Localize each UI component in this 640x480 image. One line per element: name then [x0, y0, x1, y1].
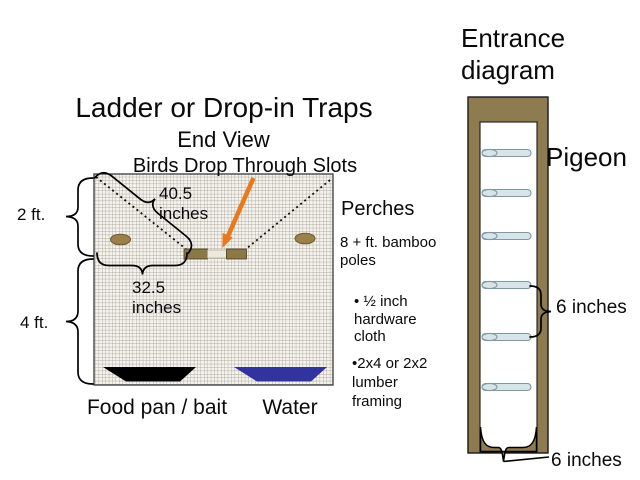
- drop-slots-caption: Birds Drop Through Slots: [128, 155, 362, 179]
- opening-width-label: 6 inches: [551, 450, 622, 472]
- perch-pole-left: [111, 234, 131, 245]
- slot-opening: [208, 250, 227, 258]
- perches-heading: Perches: [341, 198, 414, 222]
- bullet-lumber-framing: •2x4 or 2x2 lumber framing: [352, 355, 427, 411]
- brace-2ft: [66, 178, 93, 256]
- entrance-perch-bar: [482, 149, 531, 156]
- food-pan-label: Food pan / bait: [82, 396, 232, 421]
- dim-label-4ft: 4 ft.: [20, 313, 48, 333]
- entrance-perch-bar: [482, 333, 531, 340]
- dim-label-40-inches: 40.5 inches: [159, 184, 208, 224]
- brace-4ft: [66, 259, 93, 384]
- hardware-cloth-grid: [94, 174, 333, 385]
- page-title: Ladder or Drop-in Traps: [63, 91, 385, 124]
- entrance-structure: [468, 97, 551, 462]
- entrance-heading: Entrance diagram: [461, 23, 565, 87]
- entrance-perch-bar: [482, 281, 531, 288]
- slide: Ladder or Drop-in Traps End View Birds D…: [0, 0, 640, 480]
- perches-subheading: 8 + ft. bamboo poles: [340, 234, 436, 271]
- bullet-hardware-cloth: • ½ inch hardware cloth: [354, 293, 417, 346]
- entrance-perch-bar: [482, 383, 531, 390]
- entrance-perch-bar: [482, 232, 531, 239]
- perch-spacing-label: 6 inches: [556, 297, 627, 319]
- end-view-subtitle: End View: [143, 127, 304, 153]
- dim-label-2ft: 2 ft.: [17, 205, 45, 225]
- entrance-perch-bar: [482, 189, 531, 196]
- dim-label-32-inches: 32.5 inches: [132, 278, 181, 318]
- slot-board-right: [227, 249, 247, 259]
- water-label: Water: [258, 396, 322, 421]
- perch-pole-right: [295, 233, 315, 244]
- opening-width-leader-line: [504, 457, 550, 462]
- pigeon-label: Pigeon: [546, 142, 627, 173]
